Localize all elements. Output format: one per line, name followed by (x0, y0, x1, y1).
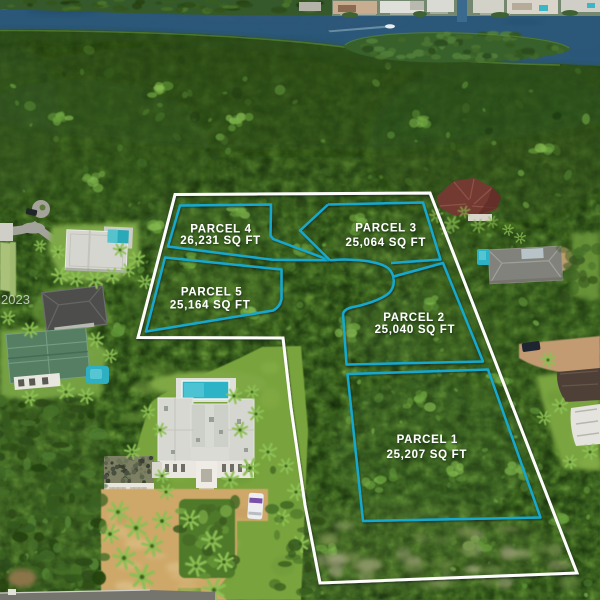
svg-text:PARCEL 5: PARCEL 5 (181, 287, 242, 299)
svg-text:PARCEL 3: PARCEL 3 (355, 222, 416, 234)
svg-text:PARCEL 1: PARCEL 1 (397, 434, 458, 446)
svg-text:25,164 SQ FT: 25,164 SQ FT (170, 300, 251, 312)
svg-text:PARCEL 4: PARCEL 4 (190, 224, 251, 236)
svg-text:25,040 SQ FT: 25,040 SQ FT (375, 324, 456, 336)
svg-text:26,231 SQ FT: 26,231 SQ FT (180, 235, 261, 247)
svg-text:PARCEL 2: PARCEL 2 (383, 312, 444, 324)
svg-text:2023: 2023 (1, 292, 30, 307)
svg-text:25,064 SQ FT: 25,064 SQ FT (345, 237, 426, 249)
svg-text:25,207 SQ FT: 25,207 SQ FT (386, 449, 467, 461)
